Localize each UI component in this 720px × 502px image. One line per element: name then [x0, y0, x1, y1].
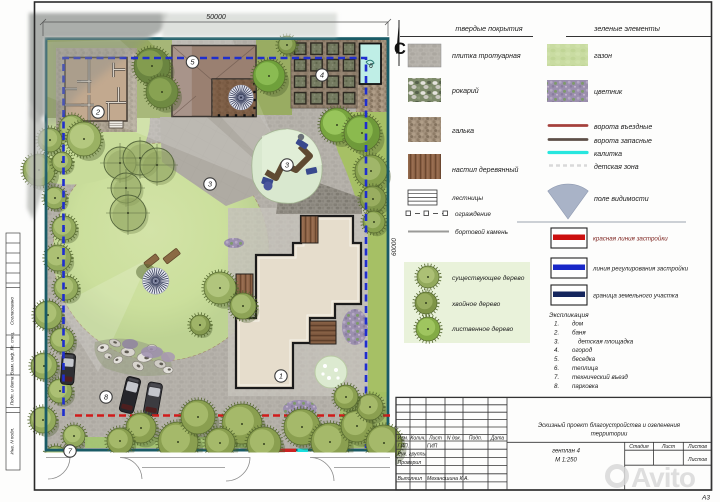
- svg-text:4.: 4.: [554, 347, 559, 354]
- svg-text:8.: 8.: [554, 383, 559, 390]
- svg-text:Листов: Листов: [687, 444, 707, 450]
- svg-text:Экспликация: Экспликация: [549, 312, 589, 319]
- svg-text:Проверил: Проверил: [398, 460, 422, 466]
- svg-text:лестницы: лестницы: [451, 195, 483, 202]
- svg-text:Подп.: Подп.: [469, 436, 482, 442]
- svg-text:Взам. инф. N: Взам. инф. N: [10, 346, 15, 375]
- svg-text:1.: 1.: [554, 321, 559, 328]
- svg-text:парковка: парковка: [572, 383, 599, 390]
- svg-text:калитка: калитка: [594, 151, 622, 158]
- svg-text:цветник: цветник: [594, 89, 623, 96]
- svg-text:3.: 3.: [554, 338, 559, 345]
- svg-text:детская зона: детская зона: [594, 163, 639, 171]
- svg-text:ГИП.: ГИП.: [398, 444, 410, 450]
- svg-text:Инв. N подл.: Инв. N подл.: [10, 428, 15, 455]
- svg-text:Рук. группы: Рук. группы: [398, 452, 427, 458]
- svg-text:дом: дом: [572, 321, 584, 328]
- svg-text:хвойное дерево: хвойное дерево: [451, 300, 501, 308]
- svg-text:1: 1: [279, 372, 283, 381]
- svg-text:линия регулирования застройки: линия регулирования застройки: [592, 266, 689, 273]
- svg-text:лиственное дерево: лиственное дерево: [451, 325, 514, 333]
- svg-text:Стадия: Стадия: [629, 444, 649, 450]
- svg-text:А3: А3: [701, 495, 710, 502]
- svg-text:зеленые элементы: зеленые элементы: [593, 24, 661, 33]
- svg-text:6.: 6.: [554, 365, 559, 372]
- svg-text:50000: 50000: [206, 14, 226, 21]
- svg-text:поле видимости: поле видимости: [594, 195, 649, 203]
- svg-text:2: 2: [95, 108, 101, 117]
- svg-text:твердые покрытия: твердые покрытия: [455, 24, 522, 33]
- svg-text:ворота въездные: ворота въездные: [594, 123, 652, 131]
- svg-text:Изм.: Изм.: [398, 436, 409, 442]
- svg-text:рокарий: рокарий: [451, 87, 479, 95]
- svg-text:Лист: Лист: [661, 444, 676, 450]
- svg-text:Эскизный проект благоустройств: Эскизный проект благоустройства и озелен…: [538, 422, 681, 429]
- svg-text:теплица: теплица: [572, 365, 599, 372]
- svg-text:7.: 7.: [554, 374, 559, 381]
- svg-text:плитка тротуарная: плитка тротуарная: [452, 53, 521, 60]
- svg-text:Дата: Дата: [490, 436, 504, 442]
- svg-text:Колич.: Колич.: [410, 436, 425, 442]
- svg-text:6: 6: [369, 63, 373, 70]
- svg-text:C: C: [394, 40, 406, 58]
- svg-text:галька: галька: [452, 128, 474, 135]
- svg-text:технический въезд: технический въезд: [572, 374, 628, 381]
- svg-text:60000: 60000: [391, 238, 398, 256]
- svg-text:бортовой камень: бортовой камень: [455, 228, 508, 236]
- svg-text:настил деревянный: настил деревянный: [452, 166, 519, 174]
- svg-text:Подп. и дата: Подп. и дата: [10, 376, 15, 405]
- svg-text:территории: территории: [591, 432, 628, 438]
- svg-text:Выполнил: Выполнил: [398, 476, 423, 482]
- svg-text:генплан 4: генплан 4: [552, 449, 581, 455]
- svg-text:красная линия застройки: красная линия застройки: [593, 236, 668, 243]
- svg-text:огород: огород: [572, 347, 593, 354]
- svg-text:детская площадка: детская площадка: [578, 338, 634, 345]
- svg-text:ворота запасные: ворота запасные: [594, 138, 652, 145]
- svg-text:существующее дерево: существующее дерево: [452, 274, 525, 282]
- svg-text:Механошина К.А.: Механошина К.А.: [427, 476, 469, 482]
- svg-text:баня: баня: [572, 329, 586, 336]
- svg-text:газон: газон: [594, 53, 612, 60]
- svg-text:Лист: Лист: [428, 436, 442, 442]
- svg-text:ограждение: ограждение: [455, 210, 491, 218]
- svg-text:Согласовано: Согласовано: [10, 297, 15, 325]
- svg-text:4: 4: [320, 71, 324, 80]
- svg-text:5.: 5.: [554, 356, 559, 363]
- svg-text:ГИП: ГИП: [427, 444, 438, 450]
- svg-text:Avito: Avito: [631, 462, 696, 493]
- svg-text:граница земельного участка: граница земельного участка: [593, 293, 679, 300]
- svg-text:беседка: беседка: [572, 356, 596, 363]
- svg-text:2.: 2.: [553, 329, 559, 336]
- svg-text:N док.: N док.: [447, 436, 461, 442]
- svg-text:М 1:250: М 1:250: [555, 458, 577, 464]
